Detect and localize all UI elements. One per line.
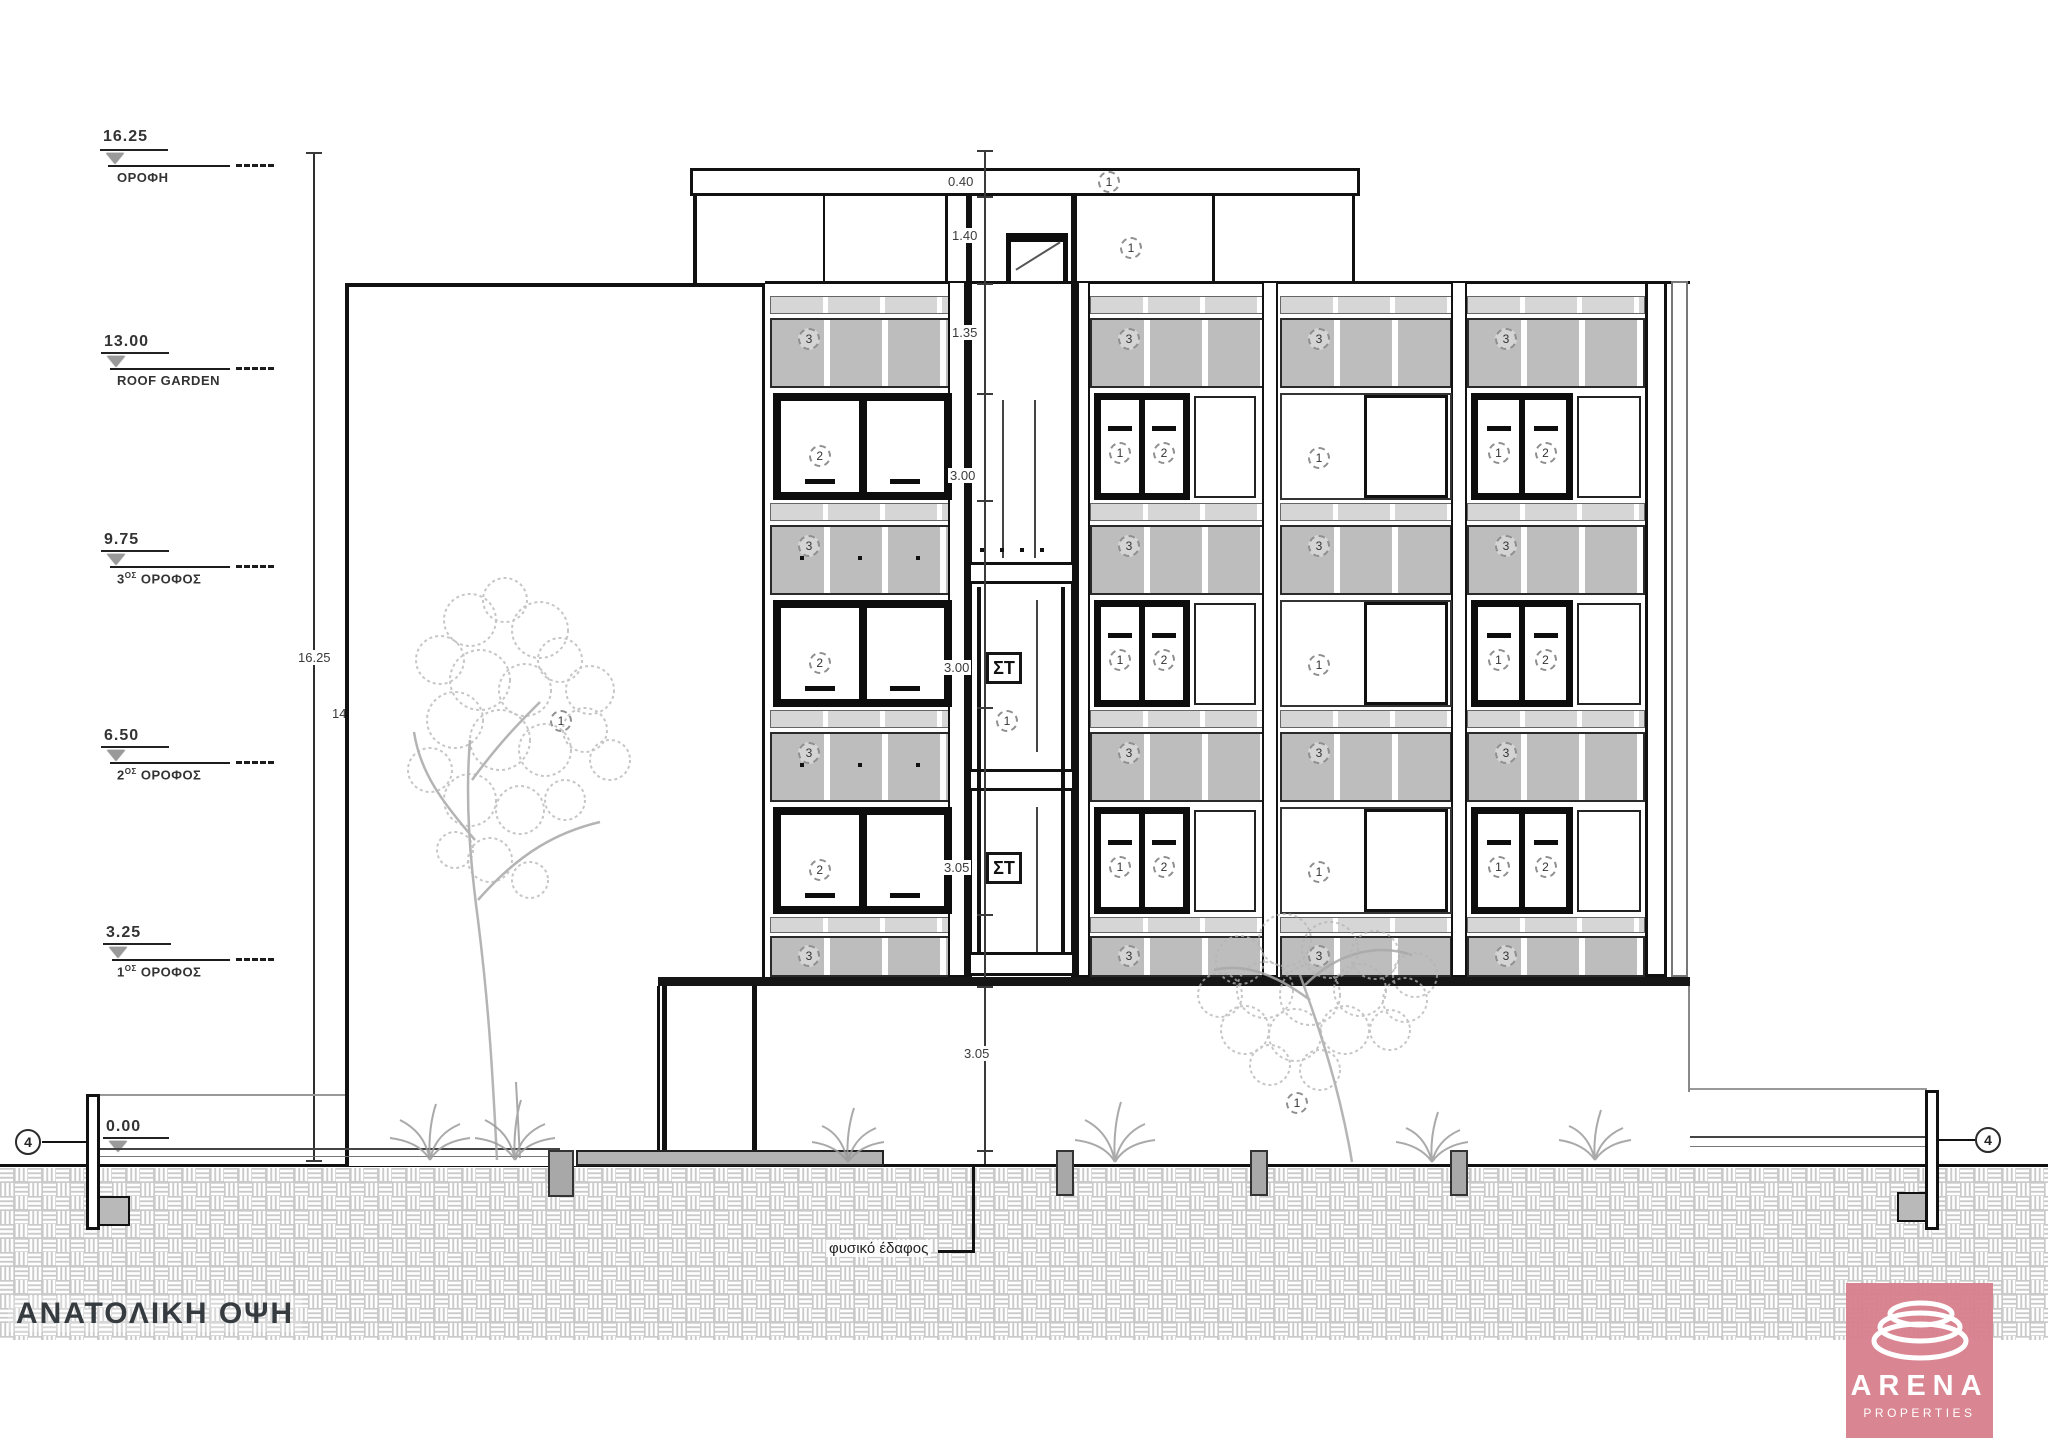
arena-rings-icon — [1846, 1283, 1993, 1363]
logo-brand: ARENA — [1846, 1370, 1993, 1403]
elevation-drawing: 16.25 ΟΡΟΦΗ 13.00 ROOF GARDEN 9.75 3ΟΣ Ο… — [0, 0, 2048, 1454]
arena-logo: ARENA PROPERTIES — [1846, 1283, 1993, 1438]
vegetation-sketch — [0, 0, 2048, 1454]
drawing-title: ΑΝΑΤΟΛΙΚΗ ΟΨΗ — [8, 1296, 302, 1332]
logo-sub: PROPERTIES — [1846, 1406, 1993, 1420]
